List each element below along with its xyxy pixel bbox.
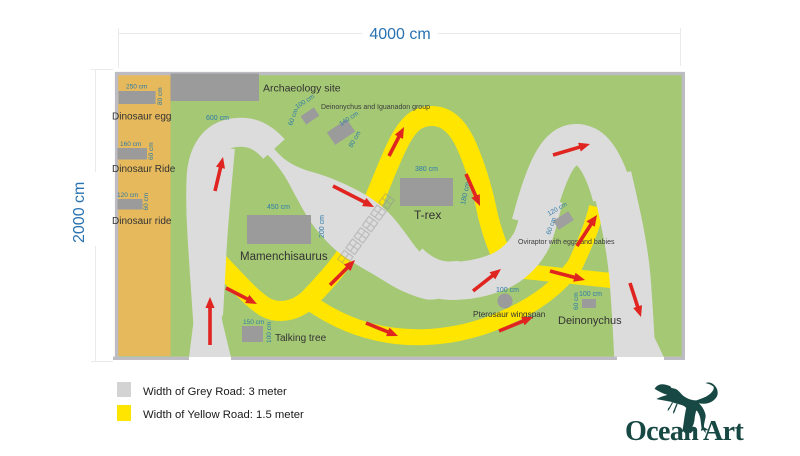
- svg-text:160 cm: 160 cm: [120, 141, 141, 148]
- svg-text:Dinosaur ride: Dinosaur ride: [112, 216, 172, 227]
- svg-text:Width of Yellow Road: 1.5 mete: Width of Yellow Road: 1.5 meter: [143, 409, 304, 421]
- svg-text:100 cm: 100 cm: [496, 287, 519, 294]
- svg-text:450 cm: 450 cm: [267, 204, 290, 211]
- svg-text:60 cm: 60 cm: [143, 193, 150, 211]
- svg-text:Deinonychus: Deinonychus: [558, 315, 622, 327]
- svg-text:Pterosaur wingspan: Pterosaur wingspan: [473, 310, 546, 319]
- svg-text:T-rex: T-rex: [414, 208, 441, 222]
- svg-text:100 cm: 100 cm: [579, 291, 602, 298]
- svg-text:Width of Grey Road: 3 meter: Width of Grey Road: 3 meter: [143, 386, 287, 398]
- svg-text:Deinonychus and Iguanadon grou: Deinonychus and Iguanadon group: [321, 104, 430, 111]
- svg-text:Ocean Art: Ocean Art: [625, 416, 745, 447]
- svg-text:Dinosaur Ride: Dinosaur Ride: [112, 164, 176, 175]
- svg-text:100 cm: 100 cm: [266, 322, 273, 343]
- svg-text:80 cm: 80 cm: [157, 87, 164, 105]
- svg-text:Archaeology site: Archaeology site: [263, 83, 341, 95]
- svg-text:60 cm: 60 cm: [148, 142, 155, 160]
- svg-text:120 cm: 120 cm: [117, 192, 138, 199]
- svg-text:60 cm: 60 cm: [573, 292, 580, 310]
- svg-text:Talking tree: Talking tree: [275, 333, 327, 344]
- svg-text:2000 cm: 2000 cm: [71, 182, 88, 243]
- svg-text:Oviraptor with eggs and babies: Oviraptor with eggs and babies: [518, 239, 615, 246]
- svg-text:Dinosaur egg: Dinosaur egg: [112, 112, 171, 123]
- svg-text:200 cm: 200 cm: [319, 215, 326, 238]
- svg-text:4000 cm: 4000 cm: [369, 26, 430, 43]
- svg-text:Mamenchisaurus: Mamenchisaurus: [240, 251, 328, 263]
- svg-text:150 cm: 150 cm: [243, 319, 264, 326]
- svg-text:250 cm: 250 cm: [126, 84, 147, 91]
- svg-text:600 cm: 600 cm: [206, 115, 229, 122]
- svg-text:380 cm: 380 cm: [415, 166, 438, 173]
